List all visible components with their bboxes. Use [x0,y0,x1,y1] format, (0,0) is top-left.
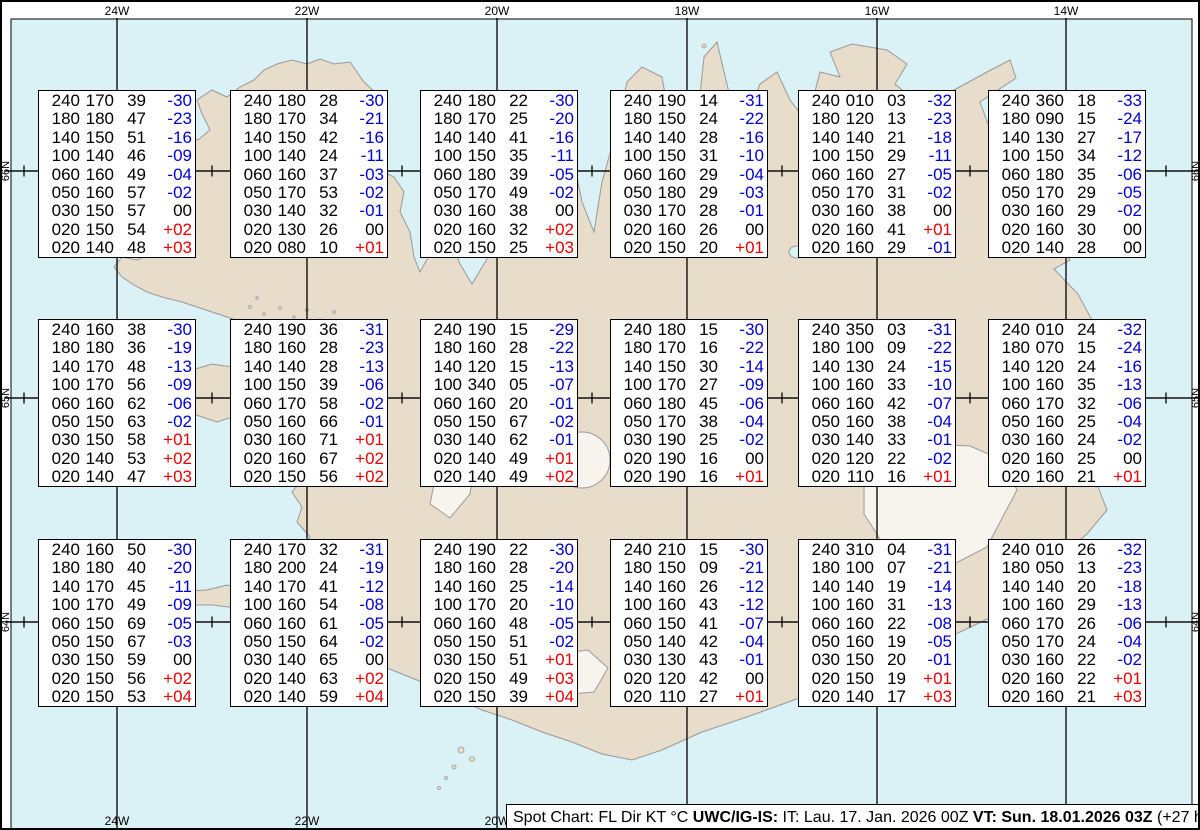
fl-value: 100 [614,147,652,165]
spot-level-row: 14013027-17 [992,129,1145,147]
dir-value: 150 [272,468,306,486]
spot-level-row: 14014019-14 [802,578,955,596]
kt-value: 51 [114,129,146,147]
spot-level-row: 14015051-16 [42,129,195,147]
kt-value: 51 [496,651,528,669]
temp-value: -02 [1096,651,1142,669]
spot-level-row: 02015020+01 [614,239,767,257]
dir-value: 170 [80,376,114,394]
spot-level-row: 18015009-21 [614,559,767,577]
dir-value: 150 [80,413,114,431]
dir-value: 140 [840,129,874,147]
fl-value: 020 [234,468,272,486]
spot-level-row: 0201603000 [992,221,1145,239]
dir-value: 160 [1030,688,1064,706]
fl-value: 050 [424,633,462,651]
kt-value: 51 [496,633,528,651]
spot-level-row: 06015041-07 [614,615,767,633]
fl-value: 240 [42,321,80,339]
dir-value: 160 [272,431,306,449]
status-bar-text: Spot Chart: FL Dir KT °C [513,809,693,827]
temp-value: 00 [146,202,192,220]
fl-value: 020 [802,468,840,486]
spot-level-row: 14013024-15 [802,358,955,376]
spot-level-row: 02016041+01 [802,221,955,239]
kt-value: 46 [114,147,146,165]
fl-value: 240 [992,92,1030,110]
spot-level-row: 06016020-01 [424,395,577,413]
dir-value: 120 [840,110,874,128]
spot-box-7: 24016038-3018018036-1914017048-131001705… [38,319,196,487]
kt-value: 41 [686,615,718,633]
dir-value: 140 [1030,239,1064,257]
fl-value: 140 [614,129,652,147]
kt-value: 62 [114,395,146,413]
dir-value: 120 [840,450,874,468]
dir-value: 070 [1030,339,1064,357]
fl-value: 240 [802,321,840,339]
temp-value: -04 [1096,413,1142,431]
temp-value: -18 [906,129,952,147]
dir-value: 170 [272,184,306,202]
fl-value: 180 [42,339,80,357]
latitude-label-left: 65N [0,388,12,408]
kt-value: 10 [306,239,338,257]
dir-value: 170 [652,339,686,357]
temp-value: +02 [528,468,574,486]
fl-value: 140 [614,358,652,376]
fl-value: 180 [614,110,652,128]
kt-value: 49 [496,468,528,486]
spot-level-row: 03014033-01 [802,431,955,449]
spot-level-row: 18012013-23 [802,110,955,128]
fl-value: 240 [424,92,462,110]
longitude-label-top: 24W [105,4,130,18]
fl-value: 030 [802,431,840,449]
spot-level-row: 24017039-30 [42,92,195,110]
spot-level-row: 06016061-05 [234,615,387,633]
spot-level-row: 02014047+03 [42,468,195,486]
kt-value: 29 [1064,184,1096,202]
dir-value: 150 [652,147,686,165]
temp-value: -06 [1096,395,1142,413]
kt-value: 48 [114,358,146,376]
latitude-label-right: 66N [1190,161,1200,181]
kt-value: 16 [874,468,906,486]
kt-value: 53 [306,184,338,202]
temp-value: -24 [1096,339,1142,357]
spot-level-row: 0301603800 [424,202,577,220]
kt-value: 34 [1064,147,1096,165]
temp-value: -05 [906,633,952,651]
temp-value: +02 [146,221,192,239]
kt-value: 32 [306,202,338,220]
temp-value: -30 [338,92,384,110]
temp-value: -20 [528,559,574,577]
kt-value: 69 [114,615,146,633]
kt-value: 25 [1064,413,1096,431]
kt-value: 25 [496,578,528,596]
fl-value: 030 [614,431,652,449]
temp-value: -14 [528,578,574,596]
spot-box-10: 24018015-3018017016-2214015030-141001702… [610,319,768,487]
kt-value: 49 [114,596,146,614]
kt-value: 21 [1064,688,1096,706]
spot-level-row: 24018028-30 [234,92,387,110]
spot-level-row: 10034005-07 [424,376,577,394]
spot-level-row: 06017032-06 [992,395,1145,413]
fl-value: 180 [992,559,1030,577]
kt-value: 24 [686,110,718,128]
spot-level-row: 02014049+01 [424,450,577,468]
dir-value: 140 [272,358,306,376]
spot-level-row: 10016043-12 [614,596,767,614]
spot-level-row: 18016028-20 [424,559,577,577]
kt-value: 49 [496,184,528,202]
kt-value: 45 [686,395,718,413]
fl-value: 050 [802,633,840,651]
fl-value: 180 [424,559,462,577]
dir-value: 150 [840,147,874,165]
dir-value: 190 [652,468,686,486]
temp-value: -30 [718,541,764,559]
spot-level-row: 05018029-03 [614,184,767,202]
dir-value: 190 [652,92,686,110]
fl-value: 030 [424,431,462,449]
spot-level-row: 06018035-06 [992,166,1145,184]
spot-level-row: 24018015-30 [614,321,767,339]
fl-value: 100 [424,596,462,614]
kt-value: 35 [496,147,528,165]
temp-value: +01 [1096,468,1142,486]
dir-value: 160 [840,202,874,220]
fl-value: 030 [234,431,272,449]
spot-level-row: 06017058-02 [234,395,387,413]
spot-level-row: 10015039-06 [234,376,387,394]
dir-value: 160 [1030,221,1064,239]
spot-level-row: 05017053-02 [234,184,387,202]
dir-value: 180 [1030,166,1064,184]
fl-value: 030 [802,651,840,669]
temp-value: -31 [906,541,952,559]
spot-level-row: 05015063-02 [42,413,195,431]
spot-level-row: 24036018-33 [992,92,1145,110]
kt-value: 22 [496,92,528,110]
spot-level-row: 03016022-02 [992,651,1145,669]
temp-value: -31 [338,541,384,559]
kt-value: 16 [686,450,718,468]
dir-value: 170 [462,110,496,128]
spot-level-row: 0201901600 [614,450,767,468]
fl-value: 020 [424,688,462,706]
dir-value: 150 [272,129,306,147]
dir-value: 190 [462,321,496,339]
dir-value: 180 [652,184,686,202]
temp-value: -05 [528,615,574,633]
fl-value: 060 [614,166,652,184]
fl-value: 240 [424,541,462,559]
spot-level-row: 05017029-05 [992,184,1145,202]
fl-value: 050 [42,633,80,651]
dir-value: 130 [652,651,686,669]
longitude-label-top: 20W [485,4,510,18]
temp-value: -12 [718,596,764,614]
spot-level-row: 03014032-01 [234,202,387,220]
dir-value: 140 [272,651,306,669]
temp-value: -23 [1096,559,1142,577]
dir-value: 140 [272,147,306,165]
fl-value: 020 [234,239,272,257]
fl-value: 050 [802,413,840,431]
temp-value: -32 [906,92,952,110]
fl-value: 020 [802,670,840,688]
spot-box-15: 24019022-3018016028-2014016025-141001702… [420,539,578,707]
dir-value: 150 [652,559,686,577]
fl-value: 060 [424,166,462,184]
dir-value: 170 [80,578,114,596]
dir-value: 150 [652,615,686,633]
temp-value: -04 [718,166,764,184]
dir-value: 170 [462,184,496,202]
kt-value: 54 [306,596,338,614]
kt-value: 39 [114,92,146,110]
temp-value: -02 [338,633,384,651]
kt-value: 24 [1064,431,1096,449]
temp-value: -23 [146,110,192,128]
spot-level-row: 06018045-06 [614,395,767,413]
dir-value: 160 [1030,670,1064,688]
spot-level-row: 06016029-04 [614,166,767,184]
spot-box-13: 24016050-3018018040-2014017045-111001704… [38,539,196,707]
temp-value: -02 [528,633,574,651]
kt-value: 34 [306,110,338,128]
spot-level-row: 10014046-09 [42,147,195,165]
spot-level-row: 24001026-32 [992,541,1145,559]
spot-level-row: 05016066-01 [234,413,387,431]
fl-value: 180 [234,110,272,128]
dir-value: 160 [652,221,686,239]
temp-value: +03 [1096,688,1142,706]
kt-value: 59 [306,688,338,706]
spot-level-row: 18010007-21 [802,559,955,577]
spot-level-row: 18017025-20 [424,110,577,128]
kt-value: 20 [874,651,906,669]
dir-value: 150 [652,239,686,257]
temp-value: -10 [718,147,764,165]
dir-value: 170 [272,578,306,596]
longitude-label-top: 22W [295,4,320,18]
temp-value: -07 [528,376,574,394]
fl-value: 050 [614,184,652,202]
spot-level-row: 10017020-10 [424,596,577,614]
kt-value: 29 [874,147,906,165]
kt-value: 38 [496,202,528,220]
kt-value: 58 [306,395,338,413]
spot-level-row: 03014062-01 [424,431,577,449]
temp-value: -30 [528,92,574,110]
spot-level-row: 06018039-05 [424,166,577,184]
fl-value: 020 [614,688,652,706]
dir-value: 120 [462,358,496,376]
dir-value: 170 [272,541,306,559]
spot-box-9: 24019015-2918016028-2214012015-131003400… [420,319,578,487]
dir-value: 140 [462,431,496,449]
kt-value: 32 [1064,395,1096,413]
dir-value: 170 [272,395,306,413]
spot-level-row: 18016028-23 [234,339,387,357]
spot-box-8: 24019036-3118016028-2314014028-131001503… [230,319,388,487]
fl-value: 060 [424,395,462,413]
fl-value: 180 [424,110,462,128]
fl-value: 050 [424,413,462,431]
kt-value: 22 [874,450,906,468]
fl-value: 060 [42,615,80,633]
kt-value: 24 [306,147,338,165]
temp-value: -31 [338,321,384,339]
spot-level-row: 02015049+03 [424,670,577,688]
fl-value: 050 [42,184,80,202]
fl-value: 240 [614,321,652,339]
spot-box-3: 24018022-3018017025-2014014041-161001503… [420,90,578,258]
dir-value: 140 [80,450,114,468]
fl-value: 020 [424,221,462,239]
kt-value: 26 [1064,541,1096,559]
dir-value: 160 [840,376,874,394]
spot-level-row: 14012024-16 [992,358,1145,376]
temp-value: -06 [146,395,192,413]
temp-value: +02 [146,670,192,688]
kt-value: 37 [306,166,338,184]
temp-value: -12 [718,578,764,596]
spot-level-row: 02014017+03 [802,688,955,706]
fl-value: 030 [802,202,840,220]
dir-value: 150 [462,688,496,706]
kt-value: 27 [686,376,718,394]
spot-level-row: 24021015-30 [614,541,767,559]
kt-value: 71 [306,431,338,449]
temp-value: -07 [718,615,764,633]
kt-value: 30 [1064,221,1096,239]
fl-value: 240 [802,92,840,110]
fl-value: 020 [802,688,840,706]
temp-value: +04 [528,688,574,706]
kt-value: 42 [306,129,338,147]
temp-value: -06 [718,395,764,413]
kt-value: 62 [496,431,528,449]
kt-value: 17 [874,688,906,706]
kt-value: 61 [306,615,338,633]
dir-value: 050 [1030,559,1064,577]
temp-value: -09 [146,376,192,394]
latitude-label-left: 64N [0,612,12,632]
fl-value: 060 [42,395,80,413]
spot-level-row: 06016042-07 [802,395,955,413]
temp-value: -07 [906,395,952,413]
spot-level-row: 14015042-16 [234,129,387,147]
fl-value: 100 [42,596,80,614]
dir-value: 160 [462,395,496,413]
dir-value: 340 [462,376,496,394]
spot-level-row: 18017016-22 [614,339,767,357]
spot-level-row: 0301505700 [42,202,195,220]
spot-level-row: 24019022-30 [424,541,577,559]
fl-value: 180 [234,559,272,577]
temp-value: -08 [906,615,952,633]
spot-level-row: 05015051-02 [424,633,577,651]
kt-value: 09 [874,339,906,357]
fl-value: 060 [614,615,652,633]
spot-level-row: 02014049+02 [424,468,577,486]
temp-value: -11 [906,147,952,165]
dir-value: 160 [840,615,874,633]
kt-value: 28 [1064,239,1096,257]
kt-value: 57 [114,184,146,202]
dir-value: 150 [80,688,114,706]
spot-level-row: 24019015-29 [424,321,577,339]
kt-value: 38 [874,413,906,431]
spot-level-row: 0301603800 [802,202,955,220]
status-bar-bold-text: UWC/IG-IS: [693,809,778,827]
kt-value: 36 [306,321,338,339]
kt-value: 53 [114,450,146,468]
longitude-label-top: 16W [865,4,890,18]
fl-value: 020 [992,670,1030,688]
temp-value: -12 [338,578,384,596]
spot-level-row: 24001024-32 [992,321,1145,339]
spot-level-row: 06016037-03 [234,166,387,184]
spot-level-row: 24019014-31 [614,92,767,110]
spot-level-row: 18007015-24 [992,339,1145,357]
spot-level-row: 05017049-02 [424,184,577,202]
dir-value: 170 [652,202,686,220]
dir-value: 170 [80,92,114,110]
dir-value: 140 [462,129,496,147]
spot-level-row: 06016049-04 [42,166,195,184]
temp-value: -14 [906,578,952,596]
spot-level-row: 14017045-11 [42,578,195,596]
temp-value: -30 [146,92,192,110]
spot-box-6: 24036018-3318009015-2414013027-171001503… [988,90,1146,258]
kt-value: 28 [306,339,338,357]
temp-value: -16 [718,129,764,147]
fl-value: 240 [614,541,652,559]
dir-value: 130 [840,358,874,376]
spot-box-14: 24017032-3118020024-1914017041-121001605… [230,539,388,707]
temp-value: -20 [528,110,574,128]
spot-level-row: 0201402800 [992,239,1145,257]
fl-value: 180 [802,559,840,577]
spot-level-row: 02014063+02 [234,670,387,688]
dir-value: 160 [462,559,496,577]
kt-value: 45 [114,578,146,596]
kt-value: 20 [686,239,718,257]
fl-value: 050 [234,413,272,431]
kt-value: 05 [496,376,528,394]
fl-value: 050 [614,633,652,651]
island-dot [470,757,475,762]
dir-value: 010 [840,92,874,110]
spot-level-row: 10017056-09 [42,376,195,394]
fl-value: 020 [42,670,80,688]
spot-level-row: 03016029-02 [992,202,1145,220]
fl-value: 140 [992,578,1030,596]
spot-level-row: 02015056+02 [234,468,387,486]
fl-value: 100 [42,147,80,165]
fl-value: 050 [42,413,80,431]
temp-value: -01 [528,395,574,413]
fl-value: 020 [424,239,462,257]
kt-value: 50 [114,541,146,559]
